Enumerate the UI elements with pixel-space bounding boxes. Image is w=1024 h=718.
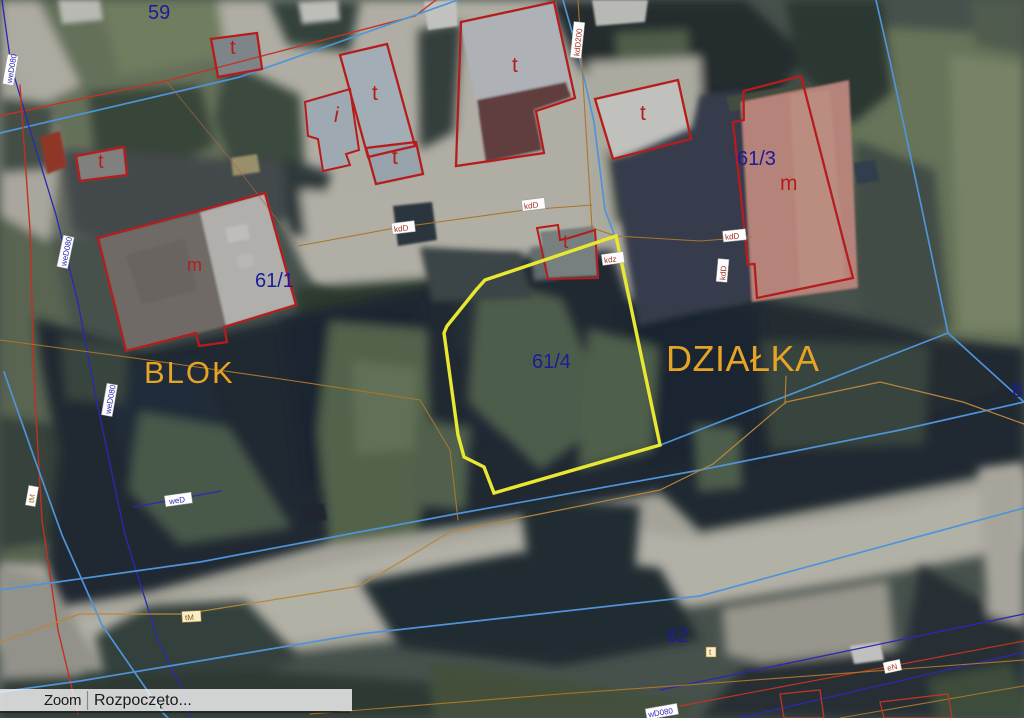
svg-text:61/3: 61/3: [737, 148, 776, 170]
svg-text:kdD: kdD: [718, 265, 728, 280]
svg-text:t: t: [640, 102, 646, 125]
svg-text:t: t: [563, 232, 569, 253]
svg-text:t: t: [230, 37, 236, 59]
svg-text:61/1: 61/1: [255, 270, 294, 292]
svg-text:t: t: [98, 151, 104, 173]
svg-text:m: m: [780, 172, 798, 195]
svg-text:kdD: kdD: [394, 223, 409, 234]
svg-text:t: t: [512, 54, 518, 77]
svg-text:59: 59: [148, 2, 170, 24]
svg-text:BLOK: BLOK: [144, 355, 235, 390]
svg-text:DZIAŁKA: DZIAŁKA: [666, 338, 820, 379]
svg-text:kdz: kdz: [604, 255, 618, 266]
svg-text:t: t: [392, 146, 398, 169]
svg-text:6: 6: [1012, 380, 1023, 402]
svg-text:61/4: 61/4: [532, 351, 571, 373]
svg-text:62: 62: [667, 626, 688, 647]
svg-text:tM: tM: [185, 613, 195, 622]
svg-text:t: t: [372, 82, 378, 105]
svg-text:m: m: [187, 255, 202, 275]
svg-text:kdD: kdD: [725, 231, 740, 241]
svg-text:Zoom: Zoom: [44, 692, 81, 709]
svg-text:kdD: kdD: [524, 200, 539, 211]
svg-text:Rozpoczęto...: Rozpoczęto...: [94, 692, 192, 709]
